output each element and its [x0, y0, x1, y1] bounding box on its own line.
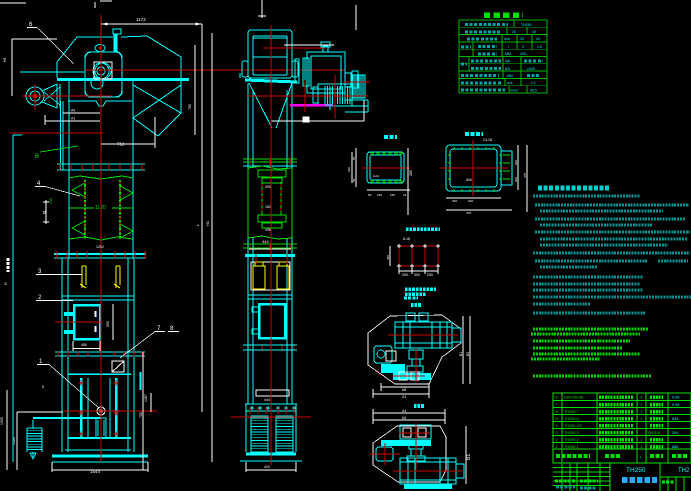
svg-text:280: 280	[409, 170, 413, 176]
svg-text:H2: H2	[3, 57, 7, 62]
svg-text:kW: kW	[505, 60, 511, 64]
svg-text:150: 150	[377, 193, 382, 197]
svg-text:550: 550	[106, 321, 110, 327]
svg-text:H1: H1	[205, 220, 210, 226]
svg-text:1487: 1487	[144, 394, 148, 402]
svg-text:886: 886	[672, 445, 678, 449]
svg-text:55: 55	[352, 178, 356, 182]
svg-text:450: 450	[386, 255, 390, 260]
svg-text:mm: mm	[504, 37, 510, 41]
svg-text:TH250.6: TH250.6	[564, 417, 579, 421]
svg-text:TH250.4/3: TH250.4/3	[564, 424, 582, 428]
svg-text:360: 360	[347, 167, 351, 172]
svg-text:A1: A1	[402, 395, 406, 399]
svg-text:3: 3	[522, 45, 524, 49]
svg-text:444: 444	[264, 398, 270, 402]
svg-text:260: 260	[452, 199, 457, 203]
svg-text:300: 300	[414, 273, 420, 277]
svg-text:200: 200	[514, 160, 518, 165]
svg-text:A1: A1	[402, 409, 406, 413]
svg-text:424: 424	[264, 465, 270, 469]
svg-text:m/s: m/s	[507, 81, 513, 85]
svg-text:20: 20	[512, 30, 516, 34]
svg-text:r/min: r/min	[510, 89, 518, 93]
svg-text:MM: MM	[505, 52, 511, 56]
svg-text:TH250.2: TH250.2	[564, 438, 579, 442]
svg-text:TH250: TH250	[521, 23, 532, 27]
svg-text:TH250.3: TH250.3	[564, 431, 579, 435]
svg-text:450: 450	[49, 198, 53, 204]
svg-text:204: 204	[672, 431, 678, 435]
svg-text:1544: 1544	[90, 469, 101, 474]
svg-text:55: 55	[352, 156, 356, 160]
svg-text:1173: 1173	[136, 17, 146, 22]
svg-text:755: 755	[139, 412, 143, 418]
svg-text:30: 30	[520, 37, 524, 41]
svg-text:22: 22	[403, 193, 407, 197]
svg-text:444: 444	[262, 239, 269, 244]
svg-text:478: 478	[523, 173, 527, 178]
svg-text:13-18: 13-18	[483, 138, 492, 142]
svg-text:1.1: 1.1	[531, 81, 536, 85]
svg-text:TH2: TH2	[678, 468, 690, 474]
svg-text:B2: B2	[466, 352, 470, 356]
svg-text:MM: MM	[507, 74, 513, 78]
svg-text:200: 200	[427, 273, 433, 277]
svg-text:TH250.7: TH250.7	[564, 410, 579, 414]
svg-text:200: 200	[402, 273, 408, 277]
svg-text:60: 60	[368, 193, 372, 197]
svg-text:480: 480	[81, 343, 87, 347]
svg-text:≥320: ≥320	[527, 67, 535, 71]
svg-text:436: 436	[265, 228, 271, 232]
svg-text:KN: KN	[505, 67, 510, 71]
svg-text:40: 40	[536, 37, 540, 41]
svg-text:1335: 1335	[0, 417, 4, 425]
svg-text:400: 400	[520, 52, 526, 56]
svg-text:8-18: 8-18	[403, 237, 410, 241]
svg-text:II: II	[42, 384, 44, 389]
svg-text:GB5782-86: GB5782-86	[564, 396, 583, 400]
svg-text:A9: A9	[71, 109, 75, 113]
svg-text:B1: B1	[466, 454, 472, 460]
svg-text:40: 40	[532, 30, 536, 34]
svg-text:Q235-A: Q235-A	[648, 431, 661, 435]
svg-text:B: B	[35, 154, 39, 160]
svg-text:b-b2: b-b2	[373, 174, 379, 178]
svg-text:A8: A8	[402, 388, 406, 392]
svg-text:200: 200	[468, 199, 473, 203]
svg-text:600: 600	[466, 178, 472, 182]
svg-text:9.08: 9.08	[672, 403, 679, 407]
svg-text:B1: B1	[459, 352, 463, 356]
svg-text:180: 180	[265, 205, 271, 209]
svg-text:836: 836	[672, 417, 678, 421]
svg-text:712: 712	[117, 142, 125, 147]
svg-text:48.5: 48.5	[530, 89, 537, 93]
svg-text:B: B	[43, 210, 46, 215]
svg-text:780: 780	[188, 104, 192, 110]
svg-text:1202: 1202	[96, 245, 104, 249]
svg-text:9.06: 9.06	[672, 396, 679, 400]
svg-text:1120: 1120	[95, 205, 106, 211]
svg-text:I: I	[508, 45, 509, 49]
svg-text:478: 478	[466, 211, 471, 215]
svg-text:250: 250	[265, 185, 271, 189]
svg-text:200: 200	[514, 177, 518, 182]
svg-text:TH250.1: TH250.1	[564, 445, 579, 449]
svg-text:TH250: TH250	[626, 467, 646, 474]
svg-text:1.5: 1.5	[537, 45, 542, 49]
svg-text:A1: A1	[71, 117, 75, 121]
svg-text:A9: A9	[402, 416, 406, 420]
svg-text:150: 150	[390, 193, 395, 197]
